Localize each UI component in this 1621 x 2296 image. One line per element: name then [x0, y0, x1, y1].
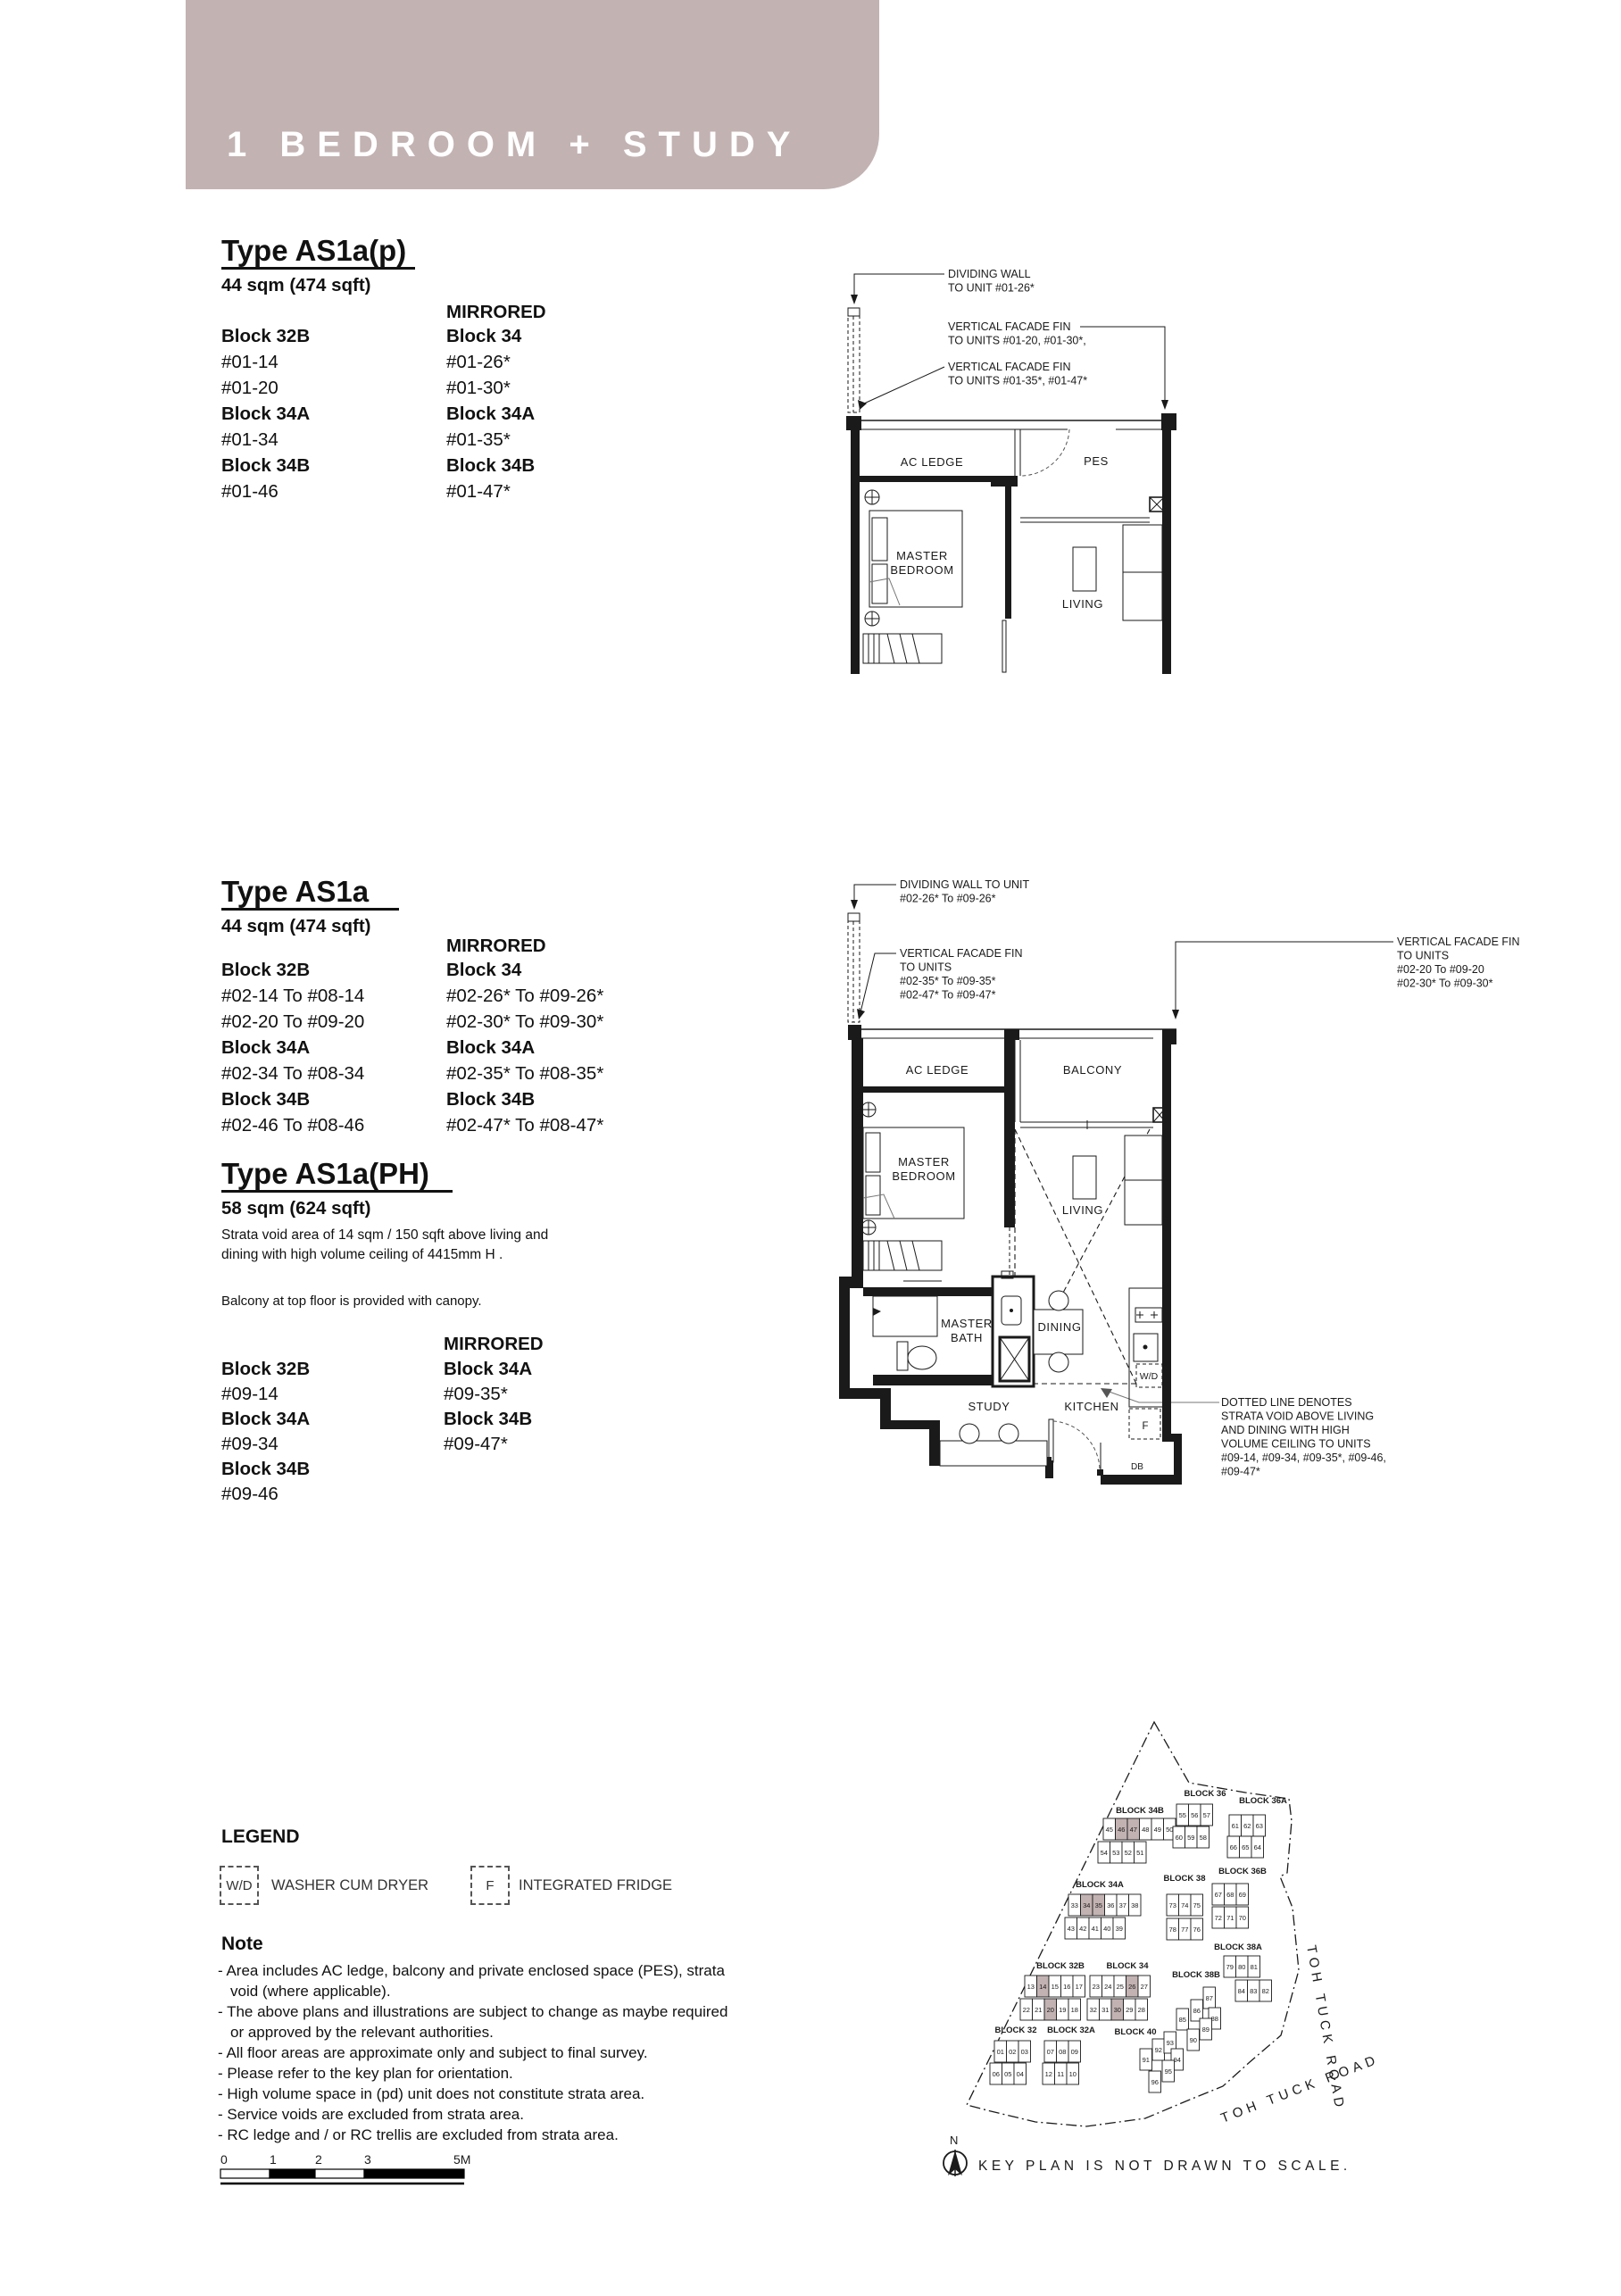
room-label-master-bath: MASTERBATH [941, 1317, 993, 1344]
note-item: All floor areas are approximate only and… [218, 2042, 734, 2063]
keyplan-unit-number: 09 [1071, 2048, 1078, 2056]
keyplan-block-block-34a: BLOCK 34A3334353637384342414039 [1065, 1880, 1141, 1939]
keyplan-unit-number: 89 [1202, 2026, 1210, 2034]
arrowhead [1101, 1388, 1112, 1398]
keyplan-unit-number: 86 [1193, 2007, 1201, 2015]
keyplan-unit-number: 27 [1141, 1983, 1148, 1991]
keyplan-unit-number: 71 [1226, 1914, 1234, 1922]
room-label-master-bedroom: MASTERBEDROOM [892, 1155, 955, 1183]
keyplan-block-label: BLOCK 36B [1218, 1867, 1267, 1876]
road-label-toh-tuck-bottom: TOH TUCK ROAD [1218, 2051, 1381, 2125]
annotation-dividing-wall: DIVIDING WALL TO UNIT#02-26* To #09-26* [900, 878, 1030, 905]
keyplan-unit-number: 83 [1250, 1987, 1257, 1995]
page-title: 1 BEDROOM + STUDY [227, 125, 802, 165]
unit-number: #02-34 To #08-34 [221, 1061, 364, 1086]
legend-label-fridge: INTEGRATED FRIDGE [519, 1877, 672, 1894]
keyplan-unit-number: 53 [1112, 1849, 1119, 1857]
strata-void-description: Strata void area of 14 sqm / 150 sqft ab… [221, 1226, 548, 1265]
mirrored-label: MIRRORED [446, 302, 546, 323]
keyplan-unit-number: 32 [1090, 2006, 1097, 2014]
block-name: Block 32B [221, 1357, 310, 1382]
keyplan-unit-number: 65 [1242, 1843, 1249, 1851]
keyplan-unit-number: 10 [1069, 2070, 1077, 2078]
entrance-door-swing [1053, 1421, 1100, 1471]
keyplan-unit-number: 80 [1238, 1963, 1245, 1971]
block-name: Block 34B [221, 1457, 310, 1482]
unit-list-right: Block 34#01-26*#01-30*Block 34A#01-35*Bl… [446, 323, 535, 504]
bath-fixtures [873, 1296, 937, 1370]
block-name: Block 34B [221, 1086, 364, 1112]
label-washer-dryer: W/D [1140, 1371, 1159, 1382]
keyplan-unit-number: 72 [1215, 1914, 1222, 1922]
section-as1aph: Type AS1a(PH) 58 sqm (624 sqft) Strata v… [221, 1159, 548, 1309]
keyplan-unit-number: 85 [1179, 2016, 1186, 2024]
leader-line [1104, 1390, 1219, 1402]
keyplan-unit-number: 67 [1215, 1891, 1222, 1899]
block-name: Block 32B [221, 957, 364, 983]
note-item: Please refer to the key plan for orienta… [218, 2063, 734, 2084]
unit-number: #02-14 To #08-14 [221, 983, 364, 1009]
unit-number: #01-14 [221, 349, 310, 375]
facade-fin-cap [848, 913, 860, 921]
keyplan-unit-number: 13 [1027, 1983, 1035, 1991]
keyplan-unit-number: 33 [1071, 1901, 1078, 1909]
section-as1ap: Type AS1a(p) 44 sqm (474 sqft) [221, 236, 415, 296]
keyplan-unit-number: 08 [1059, 2048, 1066, 2056]
keyplan-unit-number: 25 [1117, 1983, 1124, 1991]
keyplan-unit-number: 14 [1039, 1983, 1046, 1991]
scale-segment [270, 2169, 315, 2178]
keyplan-unit-number: 12 [1045, 2070, 1052, 2078]
keyplan-unit-number: 51 [1136, 1849, 1143, 1857]
keyplan-unit-number: 37 [1119, 1901, 1126, 1909]
unit-list-left: Block 32B#01-14#01-20Block 34A#01-34Bloc… [221, 323, 310, 504]
keyplan-unit-number: 64 [1254, 1843, 1261, 1851]
scale-label: 1 [270, 2152, 277, 2167]
room-label-balcony: BALCONY [1063, 1063, 1122, 1077]
keyplan-unit-number: 69 [1239, 1891, 1246, 1899]
keyplan-unit-number: 79 [1226, 1963, 1234, 1971]
leader-line [864, 367, 944, 403]
room-label-study: STUDY [968, 1400, 1010, 1413]
unit-number: #02-35* To #08-35* [446, 1061, 603, 1086]
scale-label: 2 [315, 2152, 322, 2167]
keyplan-block-block-38: BLOCK 38737475787776 [1164, 1874, 1206, 1940]
canopy-note: Balcony at top floor is provided with ca… [221, 1294, 548, 1309]
keyplan-unit-number: 61 [1232, 1822, 1239, 1830]
keyplan-unit-number: 45 [1106, 1826, 1113, 1834]
floorplan-as1ap: DIVIDING WALLTO UNIT #01-26* VERTICAL FA… [839, 250, 1223, 696]
keyplan-block-label: BLOCK 38A [1214, 1942, 1262, 1952]
annotation-strata-void: DOTTED LINE DENOTESSTRATA VOID ABOVE LIV… [1221, 1396, 1386, 1478]
keyplan-unit-number: 15 [1052, 1983, 1059, 1991]
keyplan-block-label: BLOCK 34 [1107, 1961, 1150, 1971]
keyplan-block-label: BLOCK 32B [1036, 1961, 1085, 1971]
keyplan-unit-number: 87 [1206, 1994, 1213, 2002]
room-label-kitchen: KITCHEN [1064, 1400, 1118, 1413]
block-name: Block 34A [446, 1035, 603, 1061]
keyplan-unit-number: 74 [1181, 1901, 1188, 1909]
unit-number: #02-26* To #09-26* [446, 983, 603, 1009]
keyplan-unit-number: 63 [1256, 1822, 1263, 1830]
block-name: Block 34A [221, 1407, 310, 1432]
arrowhead [851, 295, 858, 304]
unit-number: #02-47* To #08-47* [446, 1112, 603, 1138]
keyplan-unit-number: 17 [1076, 1983, 1083, 1991]
keyplan-unit-number: 40 [1103, 1925, 1110, 1933]
keyplan-unit-number: 19 [1059, 2006, 1066, 2014]
keyplan-unit-number: 52 [1125, 1849, 1132, 1857]
keyplan-block-block-32: BLOCK 32010203060504 [990, 2026, 1036, 2084]
unit-type-title: Type AS1a(PH) [221, 1159, 453, 1193]
keyplan-unit-number: 01 [997, 2048, 1004, 2056]
note-item: The above plans and illustrations are su… [218, 2001, 734, 2042]
keyplan-unit-number: 92 [1155, 2046, 1162, 2054]
keyplan-unit-number: 49 [1154, 1826, 1161, 1834]
keyplan-unit-number: 90 [1190, 2036, 1197, 2044]
keyplan-unit-number: 43 [1068, 1925, 1075, 1933]
keyplan-unit-number: 82 [1262, 1987, 1269, 1995]
keyplan-unit-number: 59 [1187, 1834, 1194, 1842]
keyplan-unit-number: 11 [1057, 2070, 1064, 2078]
keyplan-block-label: BLOCK 36 [1185, 1789, 1226, 1799]
note-item: Service voids are excluded from strata a… [218, 2104, 734, 2125]
bedroom-furniture [861, 1102, 1013, 1281]
keyplan-unit-number: 06 [993, 2070, 1000, 2078]
room-label-living: LIVING [1062, 597, 1103, 611]
keyplan-unit-number: 70 [1239, 1914, 1246, 1922]
entrance-door-leaf [1049, 1419, 1053, 1462]
keyplan-block-block-38a: BLOCK 38A798081848382 [1214, 1942, 1271, 2001]
keyplan-unit-number: 29 [1126, 2006, 1133, 2014]
keyplan-unit-number: 96 [1151, 2078, 1159, 2086]
unit-number: #01-35* [446, 427, 535, 453]
keyplan-unit-number: 48 [1142, 1826, 1149, 1834]
keyplan-unit-number: 28 [1138, 2006, 1145, 2014]
keyplan-block-label: BLOCK 34B [1116, 1806, 1164, 1816]
keyplan-unit-number: 58 [1200, 1834, 1207, 1842]
unit-list-left: Block 32B#09-14Block 34A#09-34Block 34B#… [221, 1357, 310, 1507]
keyplan-unit-number: 35 [1095, 1901, 1102, 1909]
scale-label: 3 [364, 2152, 371, 2167]
scale-label: 0 [220, 2152, 228, 2167]
annotation-facade-fin-left: VERTICAL FACADE FINTO UNITS #01-35*, #01… [948, 361, 1087, 387]
north-arrow-icon: N [944, 2134, 967, 2176]
keyplan-block-block-32a: BLOCK 32A070809121110 [1043, 2026, 1095, 2084]
bedroom-furniture [863, 490, 962, 663]
keyplan-block-block-38b: BLOCK 38B858687888990 [1172, 1970, 1220, 2051]
kitchen-counter [1129, 1288, 1163, 1439]
unit-list-left: Block 32B#02-14 To #08-14#02-20 To #09-2… [221, 957, 364, 1138]
keyplan-unit-number: 77 [1181, 1926, 1188, 1934]
keyplan-unit-number: 42 [1079, 1925, 1086, 1933]
scale-segment [364, 2169, 464, 2178]
block-name: Block 34A [221, 401, 310, 427]
scale-segment [315, 2169, 364, 2178]
brochure-page: 1 BEDROOM + STUDY Type AS1a(p) 44 sqm (4… [0, 0, 1621, 2296]
room-label-ac-ledge: AC LEDGE [901, 455, 964, 469]
keyplan-block-label: BLOCK 32 [995, 2026, 1037, 2035]
unit-number: #09-46 [221, 1482, 310, 1507]
keyplan-unit-number: 73 [1169, 1901, 1176, 1909]
keyplan-unit-number: 75 [1193, 1901, 1201, 1909]
keyplan-block-label: BLOCK 38B [1172, 1970, 1220, 1980]
keyplan-unit-number: 60 [1176, 1834, 1183, 1842]
notes-title: Note [221, 1934, 263, 1955]
room-label-ac-ledge: AC LEDGE [906, 1063, 969, 1077]
keyplan-unit-number: 78 [1169, 1926, 1176, 1934]
unit-area: 44 sqm (474 sqft) [221, 275, 415, 296]
keyplan-unit-number: 47 [1130, 1826, 1137, 1834]
keyplan-block-label: BLOCK 36A [1239, 1796, 1287, 1806]
arrowhead [857, 1009, 865, 1019]
leader-line [860, 953, 896, 1012]
block-name: Block 34B [446, 453, 535, 478]
keyplan-unit-number: 81 [1251, 1963, 1258, 1971]
room-label-master-bedroom: MASTERBEDROOM [890, 549, 953, 577]
keyplan-unit-number: 55 [1179, 1811, 1186, 1819]
unit-number: #01-20 [221, 375, 310, 401]
leader-line [854, 274, 944, 298]
block-name: Block 34 [446, 323, 535, 349]
mirrored-label: MIRRORED [444, 1334, 544, 1355]
block-name: Block 34A [444, 1357, 532, 1382]
keyplan-unit-number: 38 [1131, 1901, 1138, 1909]
keyplan-block-block-36: BLOCK 36555657605958 [1173, 1789, 1226, 1848]
leader-line [854, 885, 896, 903]
unit-number: #02-30* To #09-30* [446, 1009, 603, 1035]
unit-number: #01-26* [446, 349, 535, 375]
keyplan-unit-number: 22 [1023, 2006, 1030, 2014]
keyplan-unit-number: 24 [1104, 1983, 1111, 1991]
scale-segment [220, 2169, 270, 2178]
arrowhead [1161, 400, 1168, 410]
keyplan-unit-number: 66 [1230, 1843, 1237, 1851]
section-as1a: Type AS1a 44 sqm (474 sqft) [221, 877, 399, 937]
block-name: Block 34B [444, 1407, 532, 1432]
keyplan-unit-number: 23 [1093, 1983, 1100, 1991]
keyplan-block-label: BLOCK 34A [1076, 1880, 1124, 1890]
unit-number: #09-35* [444, 1382, 532, 1407]
keyplan-unit-number: 39 [1116, 1925, 1123, 1933]
keyplan-unit-number: 20 [1047, 2006, 1054, 2014]
room-label-living: LIVING [1062, 1203, 1103, 1217]
keyplan-unit-number: 54 [1101, 1849, 1108, 1857]
keyplan-unit-number: 34 [1083, 1901, 1090, 1909]
entrance-door-swing [1020, 429, 1069, 476]
header-band: 1 BEDROOM + STUDY [186, 0, 879, 189]
unit-number: #01-34 [221, 427, 310, 453]
keyplan-unit-number: 05 [1004, 2070, 1011, 2078]
keyplan-unit-number: 50 [1166, 1826, 1173, 1834]
unit-number: #02-46 To #08-46 [221, 1112, 364, 1138]
label-fridge: F [1142, 1421, 1148, 1432]
keyplan-disclaimer: KEY PLAN IS NOT DRAWN TO SCALE. [978, 2159, 1351, 2174]
keyplan-unit-number: 03 [1021, 2048, 1028, 2056]
block-name: Block 34B [221, 453, 310, 478]
keyplan-unit-number: 93 [1167, 2039, 1174, 2047]
keyplan-block-block-40: BLOCK 40919293949596 [1115, 2027, 1184, 2092]
block-name: Block 34 [446, 957, 603, 983]
leader-line [1176, 942, 1393, 1013]
keyplan-block-label: BLOCK 32A [1047, 2026, 1095, 2035]
unit-type-title: Type AS1a [221, 877, 399, 911]
annotation-dividing-wall: DIVIDING WALLTO UNIT #01-26* [948, 268, 1035, 295]
arrowhead [851, 900, 858, 910]
legend-symbol-fridge: F [470, 1866, 510, 1905]
keyplan-unit-number: 16 [1063, 1983, 1070, 1991]
annotation-facade-fin-left: VERTICAL FACADE FINTO UNITS#02-35* To #0… [900, 947, 1023, 1002]
keyplan-unit-number: 68 [1226, 1891, 1234, 1899]
unit-number: #09-34 [221, 1432, 310, 1457]
block-name: Block 34A [221, 1035, 364, 1061]
room-label-dining: DINING [1037, 1320, 1081, 1334]
block-name: Block 34B [446, 1086, 603, 1112]
keyplan-block-block-34b: BLOCK 34B45464748495054535251 [1098, 1806, 1176, 1863]
unit-number: #02-20 To #09-20 [221, 1009, 364, 1035]
notes-list: Area includes AC ledge, balcony and priv… [218, 1960, 734, 2145]
note-item: Area includes AC ledge, balcony and priv… [218, 1960, 734, 2001]
keyplan-unit-number: 56 [1191, 1811, 1198, 1819]
block-name: Block 32B [221, 323, 310, 349]
block-name: Block 34A [446, 401, 535, 427]
keyplan-unit-number: 41 [1092, 1925, 1099, 1933]
unit-number: #09-14 [221, 1382, 310, 1407]
unit-type-title: Type AS1a(p) [221, 236, 415, 270]
legend-title: LEGEND [221, 1826, 300, 1848]
keyplan-unit-number: 26 [1128, 1983, 1135, 1991]
keyplan-unit-number: 30 [1114, 2006, 1121, 2014]
legend-label-wd: WASHER CUM DRYER [271, 1877, 428, 1894]
note-item: High volume space in (pd) unit does not … [218, 2084, 734, 2104]
study-furniture [940, 1424, 1047, 1466]
keyplan-unit-number: 31 [1101, 2006, 1109, 2014]
keyplan-unit-number: 84 [1238, 1987, 1245, 1995]
site-key-plan: BLOCK 34B45464748495054535251BLOCK 36555… [928, 1696, 1621, 2232]
keyplan-unit-number: 95 [1165, 2067, 1172, 2076]
keyplan-block-block-32b: BLOCK 32B13141516172221201918 [1020, 1961, 1085, 2020]
keyplan-unit-number: 36 [1107, 1901, 1114, 1909]
floorplan-as1a: DIVIDING WALL TO UNIT#02-26* To #09-26* … [839, 857, 1621, 1518]
unit-area: 58 sqm (624 sqft) [221, 1198, 548, 1219]
keyplan-block-block-36b: BLOCK 36B676869727170 [1212, 1867, 1267, 1928]
label-db: DB [1131, 1462, 1143, 1472]
svg-text:N: N [950, 2134, 958, 2147]
keyplan-unit-number: 02 [1009, 2048, 1016, 2056]
keyplan-unit-number: 18 [1071, 2006, 1078, 2014]
unit-number: #01-30* [446, 375, 535, 401]
annotation-facade-fin-right: VERTICAL FACADE FINTO UNITS #01-20, #01-… [948, 320, 1086, 347]
room-label-pes: PES [1084, 454, 1109, 468]
keyplan-block-label: BLOCK 40 [1115, 2027, 1157, 2037]
keyplan-unit-number: 21 [1035, 2006, 1042, 2014]
unit-number: #01-47* [446, 478, 535, 504]
keyplan-block-block-36a: BLOCK 36A616263666564 [1227, 1796, 1287, 1858]
keyplan-unit-number: 62 [1243, 1822, 1251, 1830]
unit-list-right: Block 34A#09-35*Block 34B#09-47* [444, 1357, 532, 1457]
facade-fin-cap [848, 308, 860, 316]
legend-symbol-wd: W/D [220, 1866, 259, 1905]
scale-bar: 01235M [214, 2148, 482, 2192]
keyplan-unit-number: 57 [1203, 1811, 1210, 1819]
keyplan-block-block-34: BLOCK 3423242526273231302928 [1087, 1961, 1151, 2020]
service-shaft [993, 1271, 1034, 1386]
keyplan-unit-number: 04 [1017, 2070, 1024, 2078]
annotation-facade-fin-right: VERTICAL FACADE FINTO UNITS#02-20 To #09… [1397, 936, 1520, 990]
note-item: RC ledge and / or RC trellis are exclude… [218, 2125, 734, 2145]
leader-line [1080, 327, 1165, 403]
keyplan-unit-number: 76 [1193, 1926, 1201, 1934]
keyplan-block-label: BLOCK 38 [1164, 1874, 1206, 1884]
mirrored-label: MIRRORED [446, 936, 546, 957]
unit-number: #01-46 [221, 478, 310, 504]
unit-area: 44 sqm (474 sqft) [221, 916, 399, 937]
keyplan-unit-number: 46 [1118, 1826, 1125, 1834]
scale-label: 5M [453, 2152, 470, 2167]
unit-number: #09-47* [444, 1432, 532, 1457]
keyplan-unit-number: 91 [1143, 2056, 1150, 2064]
keyplan-unit-number: 07 [1047, 2048, 1054, 2056]
arrowhead [1172, 1010, 1179, 1019]
unit-list-right: Block 34#02-26* To #09-26*#02-30* To #09… [446, 957, 603, 1138]
